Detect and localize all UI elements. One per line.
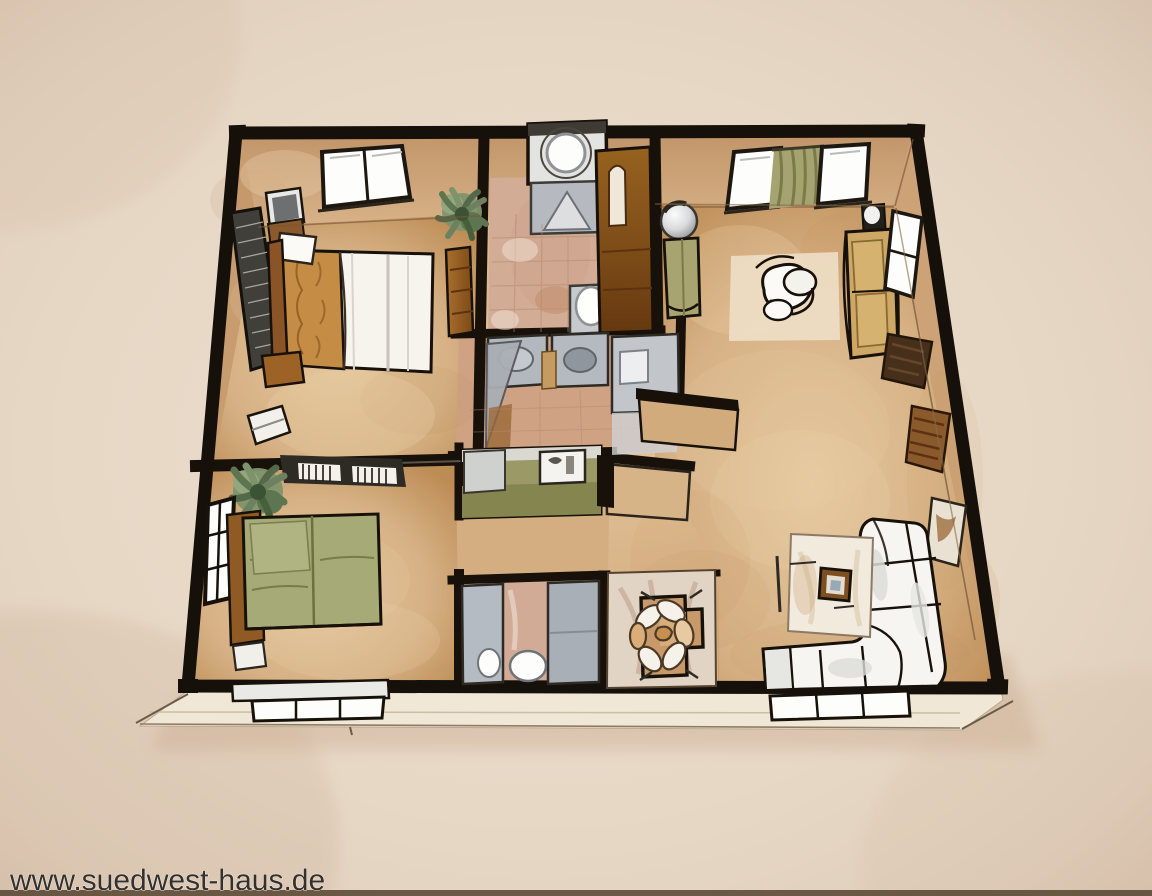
- svg-text:www.suedwest-haus.de: www.suedwest-haus.de: [9, 864, 325, 896]
